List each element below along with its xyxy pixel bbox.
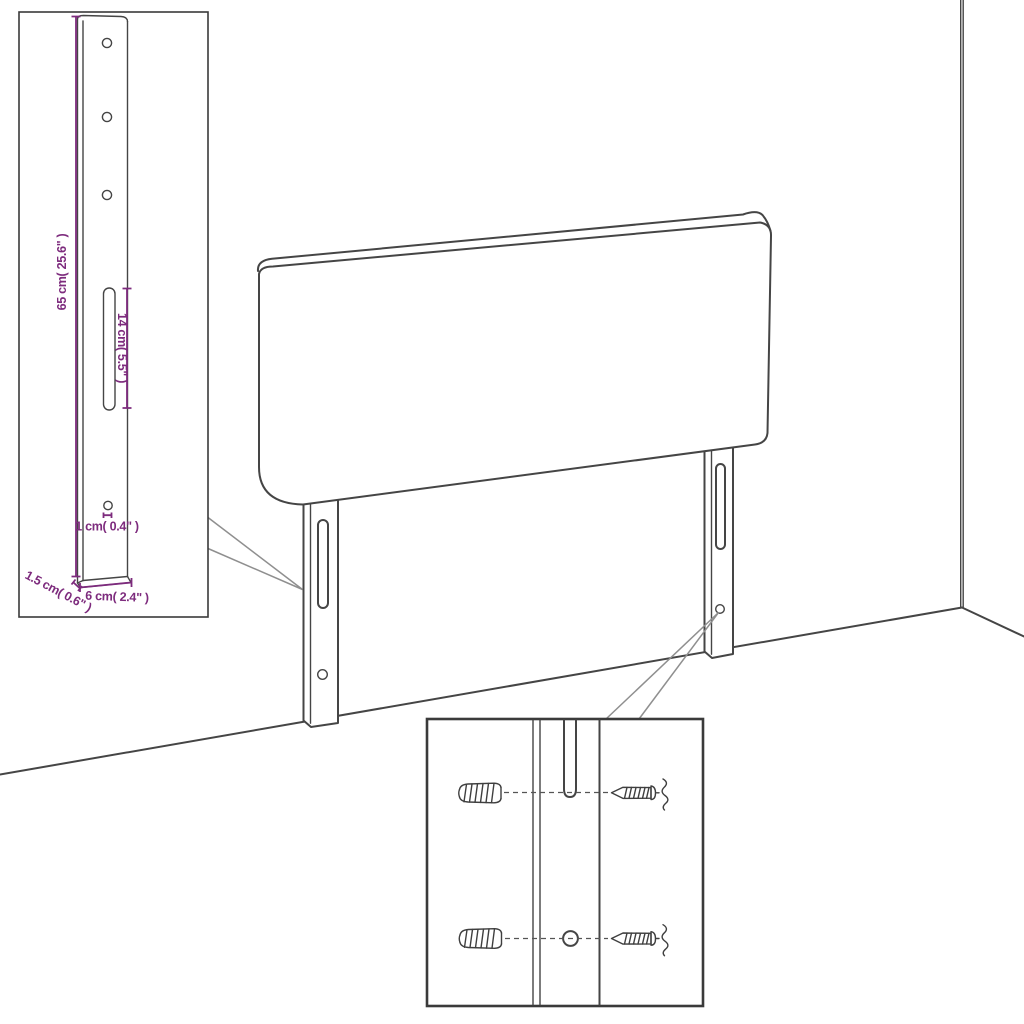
hole-dimension-label: 1 cm( 0.4" ) xyxy=(75,519,139,533)
left-leg xyxy=(304,490,339,727)
height-dimension-label: 65 cm( 25.6" ) xyxy=(55,233,69,310)
headboard-front-face xyxy=(259,223,771,505)
slot-dimension-label: 14 cm( 5.5" ) xyxy=(115,313,129,383)
bracket-detail-box: 65 cm( 25.6" ) 14 cm( 5.5" ) 1 cm( 0.4" … xyxy=(19,12,208,617)
width-dimension-label: 6 cm( 2.4" ) xyxy=(85,589,149,605)
wall-corner-line xyxy=(961,0,964,608)
headboard-panel xyxy=(258,212,771,504)
headboard-dimension-diagram: 65 cm( 25.6" ) 14 cm( 5.5" ) 1 cm( 0.4" … xyxy=(0,0,1024,1024)
floor-line-right xyxy=(962,608,1024,637)
left-callout-lines xyxy=(208,518,303,590)
hardware-detail-box xyxy=(427,719,703,1006)
